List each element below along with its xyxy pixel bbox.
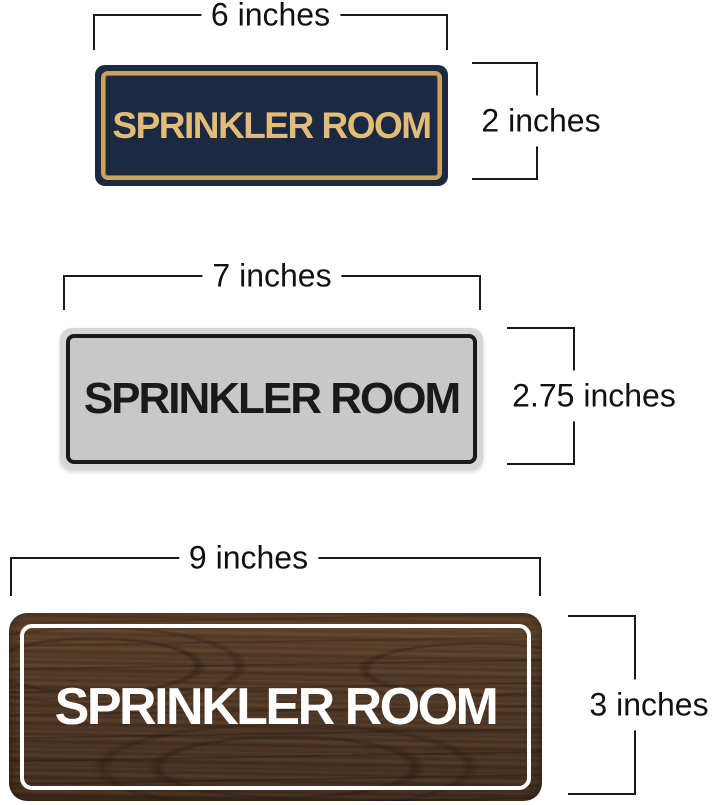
dimension-tick-right xyxy=(479,275,481,310)
dimension-tick-left xyxy=(10,557,12,596)
width-dimension-sign1: 6 inches xyxy=(93,14,448,50)
sign-size-comparison-diagram: 6 inches SPRINKLER ROOM 2 inches 7 inche… xyxy=(0,0,722,805)
width-dimension-sign2: 7 inches xyxy=(63,275,481,310)
sign-text: SPRINKLER ROOM xyxy=(112,105,430,147)
height-dimension-label: 3 inches xyxy=(579,679,718,730)
dimension-tick-right xyxy=(539,557,541,596)
sign-text: SPRINKLER ROOM xyxy=(55,677,497,737)
sign-text: SPRINKLER ROOM xyxy=(84,374,459,424)
dimension-cap-bottom xyxy=(472,178,538,180)
width-dimension-label: 9 inches xyxy=(179,538,318,577)
dimension-cap-top xyxy=(568,615,636,617)
width-dimension-label: 6 inches xyxy=(201,0,340,35)
sign-walnut-white: SPRINKLER ROOM xyxy=(9,613,542,801)
dimension-tick-left xyxy=(93,14,95,50)
dimension-cap-bottom xyxy=(568,793,636,795)
height-dimension-label: 2 inches xyxy=(471,95,610,146)
height-dimension-sign2: 2.75 inches xyxy=(507,327,575,465)
dimension-tick-right xyxy=(446,14,448,50)
height-dimension-sign1: 2 inches xyxy=(472,62,538,180)
width-dimension-sign3: 9 inches xyxy=(10,557,541,596)
sign-silver-black: SPRINKLER ROOM xyxy=(60,328,483,470)
height-dimension-sign3: 3 inches xyxy=(568,615,636,795)
sign-navy-gold: SPRINKLER ROOM xyxy=(95,65,448,186)
dimension-cap-top xyxy=(472,62,538,64)
height-dimension-label: 2.75 inches xyxy=(502,370,686,421)
dimension-tick-left xyxy=(63,275,65,310)
width-dimension-label: 7 inches xyxy=(202,256,341,295)
dimension-cap-bottom xyxy=(507,463,575,465)
dimension-cap-top xyxy=(507,327,575,329)
